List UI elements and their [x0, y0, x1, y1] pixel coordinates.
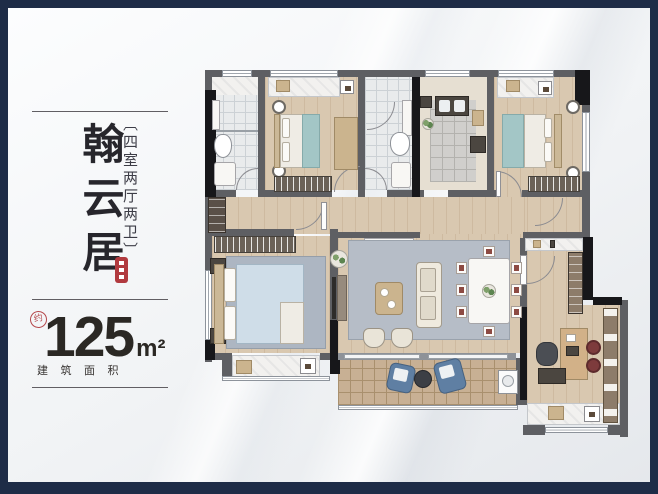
bracket-open: 〔: [121, 116, 139, 134]
bedroom3-wardrobe: [528, 176, 580, 192]
study-laptop: [566, 346, 579, 356]
bedroom3-picture-frame: [538, 81, 552, 95]
sliding-door-pane-1: [344, 354, 420, 359]
wall-bath1-bed2: [258, 77, 265, 197]
bedroom3-nightstand-lamp-top: [566, 100, 580, 114]
hallway-shoe-cabinet: [208, 197, 226, 233]
dining-chair-right-3: [511, 306, 522, 318]
window-bedroom3-side: [582, 112, 590, 172]
master-wardrobe: [214, 236, 296, 253]
kitchen-greens: [422, 118, 434, 130]
bedroom2-pillow-2: [282, 142, 290, 162]
bedroom2-decor-bags: [276, 80, 290, 92]
study-bookshelf: [603, 308, 618, 423]
wall-step-horizontal: [593, 297, 622, 305]
layout-tagline: 〔四室两厅两卫〕: [120, 116, 141, 266]
area-label: 建筑面积: [37, 362, 131, 378]
dining-chair-bottom: [483, 326, 495, 337]
dining-chair-top: [483, 246, 495, 257]
area-figure: 125 m²: [44, 314, 165, 363]
living-tv-console: [337, 275, 347, 321]
kitchen-corner-shelf: [420, 96, 432, 108]
bedroom3-pillow-2: [544, 142, 552, 162]
bath2-toilet: [390, 132, 410, 156]
entry-console-decor-1: [533, 240, 541, 248]
column-entry-right: [583, 237, 593, 300]
bedroom3-pillow-1: [544, 118, 552, 138]
dining-chair-right-2: [511, 284, 522, 296]
dining-chair-right-1: [511, 262, 522, 274]
bathroom-1-bay: [212, 77, 258, 95]
area-unit: m²: [136, 335, 165, 363]
entry-shoe-cabinet: [568, 252, 583, 314]
window-bedroom3: [498, 70, 554, 77]
bedroom2-nightstand-lamp-top: [272, 100, 286, 114]
bedroom3-bed-headboard: [554, 114, 562, 168]
kitchen-stove: [470, 136, 486, 153]
divider-middle: [32, 299, 168, 300]
bedroom2-pillow-1: [282, 118, 290, 138]
master-bed-duvet: [280, 302, 304, 344]
bedroom3-decor-bags: [506, 80, 520, 92]
bath1-shelf: [212, 100, 220, 130]
living-plant: [330, 250, 348, 268]
study-pouf-2: [586, 358, 601, 373]
living-armchair-2: [391, 328, 413, 348]
bedroom3-bed-sheets: [524, 114, 546, 168]
study-pouf-1: [586, 340, 601, 355]
master-bay-jamb-left: [222, 355, 232, 378]
red-seal-icon: [115, 257, 128, 283]
bedroom2-dresser: [334, 117, 358, 170]
living-coffee-table: [375, 282, 403, 315]
window-bedroom2: [270, 70, 338, 77]
balcony-round-table: [414, 370, 432, 388]
ac-unit-fan: [502, 375, 514, 387]
wall-kitchen-bed3: [487, 77, 494, 197]
master-pillow-1: [224, 268, 236, 302]
door-leaf-master: [321, 202, 327, 230]
study-side-table: [538, 368, 566, 384]
window-bath1: [222, 70, 252, 77]
kitchen-sink-basin-2: [454, 100, 465, 112]
coffee-table-tray-2: [387, 300, 396, 309]
coffee-table-tray-1: [380, 288, 389, 297]
window-master-bay: [222, 376, 330, 381]
living-tv: [332, 277, 336, 319]
bedroom3-bed-blanket: [502, 114, 524, 168]
wall-master-bottom-b: [320, 353, 330, 360]
dining-chair-left-3: [456, 306, 467, 318]
balcony-railing: [338, 405, 518, 410]
wall-study-bottom-b: [608, 425, 628, 435]
bedroom2-wardrobe: [274, 176, 332, 192]
master-pillow-2: [224, 306, 236, 340]
sliding-door-pane-2: [428, 354, 508, 359]
wall-study-bottom-a: [523, 425, 545, 435]
door-leaf-bedroom3: [496, 171, 501, 197]
bedroom2-picture-frame: [340, 80, 354, 94]
living-armchair-1: [363, 328, 385, 348]
sofa-cushion-1: [420, 268, 436, 292]
entry-console-decor-2: [550, 240, 555, 248]
kitchen-cutting-board: [472, 110, 484, 126]
wall-hall-e: [448, 190, 496, 197]
bath2-vanity: [391, 162, 411, 188]
bath1-toilet: [214, 134, 232, 158]
dining-chair-left-1: [456, 262, 467, 274]
dining-chair-left-2: [456, 284, 467, 296]
study-bay-frame: [584, 406, 600, 422]
study-papers: [566, 334, 576, 342]
study-bay-bags: [548, 406, 564, 420]
area-value: 125: [44, 314, 133, 361]
bath1-shower-rail: [216, 130, 258, 132]
sofa-cushion-2: [420, 296, 436, 320]
dining-plant: [482, 284, 496, 298]
bath2-cabinet: [402, 100, 412, 136]
bedroom2-bed-blanket: [302, 114, 320, 168]
master-bay-deer-frame: [300, 358, 316, 374]
divider-top: [32, 111, 168, 112]
column-topright: [575, 70, 590, 105]
column-study-left: [520, 307, 527, 400]
study-office-chair: [536, 342, 558, 366]
column-bath2-kitchen: [412, 77, 420, 197]
window-kitchen: [425, 70, 470, 77]
divider-bottom: [32, 387, 168, 388]
tagline-text: 四室两厅两卫: [121, 134, 139, 242]
master-bay-books: [236, 360, 252, 374]
floor-plan: [188, 62, 640, 442]
window-study-bay: [545, 427, 608, 433]
poster-frame: 翰云居 〔四室两厅两卫〕 约 125 m² 建筑面积: [0, 0, 658, 494]
master-bed-headboard: [214, 264, 224, 344]
kitchen-sink-basin-1: [439, 100, 450, 112]
bath1-vanity: [214, 162, 236, 186]
wall-study-right: [620, 300, 628, 437]
